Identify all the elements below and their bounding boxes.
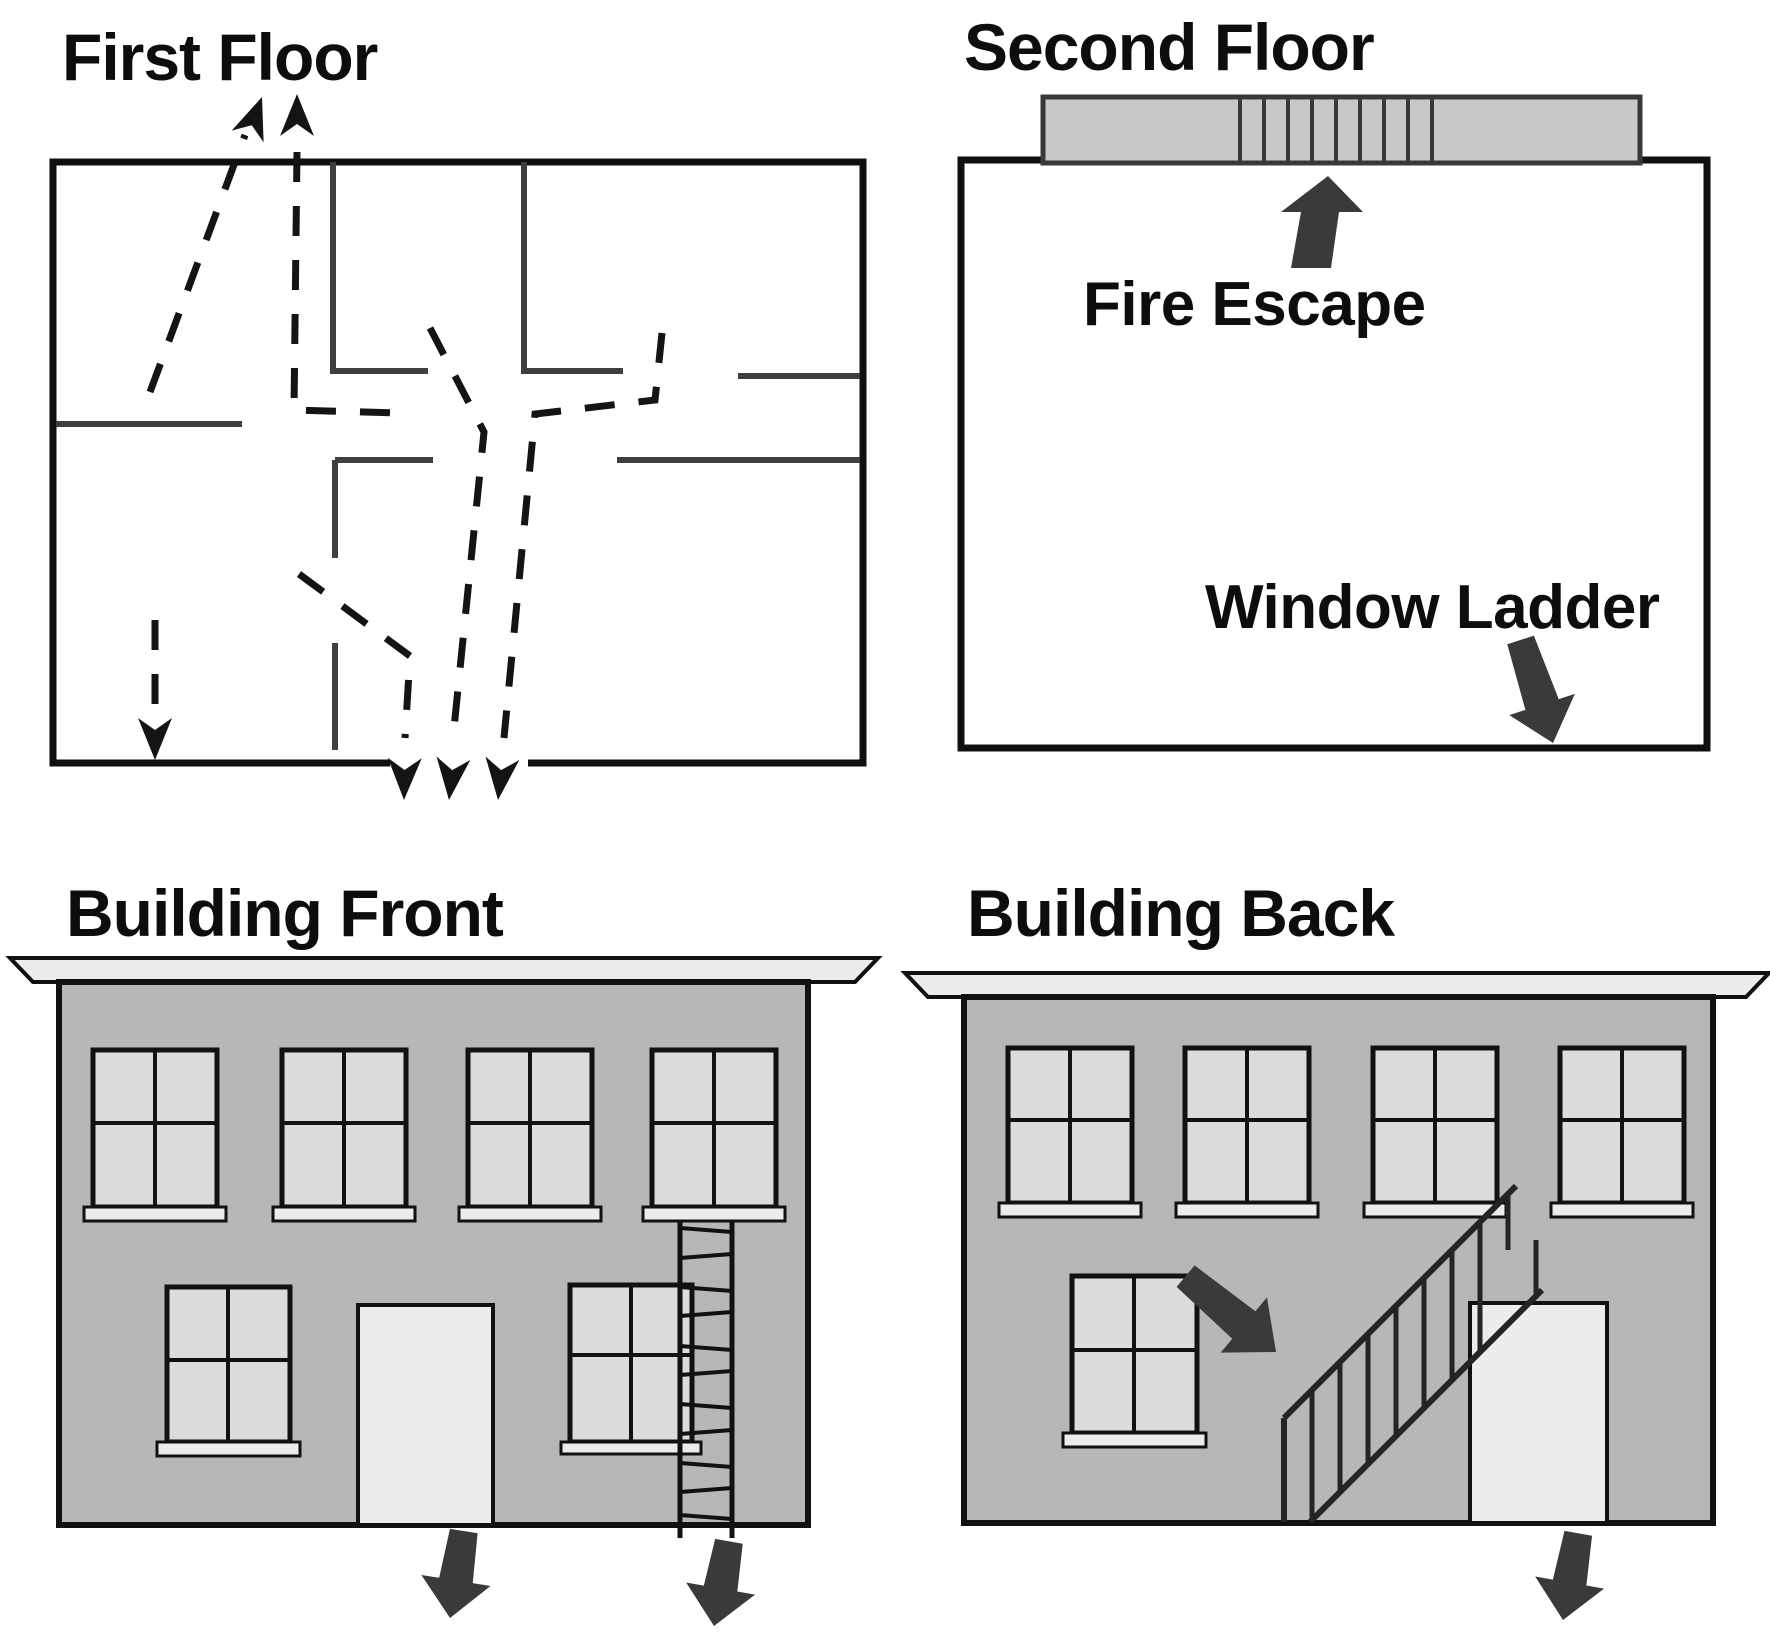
first-floor-title: First Floor — [62, 20, 378, 94]
back-upper-window-4 — [1551, 1048, 1693, 1217]
back-upper-window-2 — [1176, 1048, 1318, 1217]
escape-route-down-left — [138, 620, 172, 760]
front-door-exit-arrow — [415, 1526, 498, 1624]
fire-escape-diagram: First Floor — [0, 0, 1770, 1632]
front-upper-window-1 — [84, 1050, 226, 1221]
front-door — [358, 1305, 493, 1525]
front-upper-window-3 — [459, 1050, 601, 1221]
front-upper-window-4 — [643, 1050, 785, 1221]
back-door-exit-arrow — [1529, 1527, 1613, 1626]
building-front-roof — [10, 958, 878, 982]
first-floor-panel: First Floor — [53, 20, 863, 802]
building-back-title: Building Back — [967, 876, 1395, 950]
building-back-panel: Building Back — [905, 876, 1769, 1626]
fire-escape-platform — [1043, 97, 1640, 163]
building-front-title: Building Front — [66, 876, 504, 950]
building-back-roof — [905, 973, 1769, 997]
building-front-panel: Building Front — [10, 876, 878, 1632]
back-lower-window — [1063, 1276, 1206, 1447]
back-door — [1470, 1303, 1607, 1523]
second-floor-panel: Second Floor Fire Escape Window Ladder — [961, 10, 1707, 753]
back-upper-window-1 — [999, 1048, 1141, 1217]
fire-escape-label: Fire Escape — [1083, 270, 1426, 339]
front-ladder-exit-arrow — [680, 1535, 764, 1632]
escape-route-up-left — [150, 91, 278, 392]
escape-route-right — [481, 333, 662, 802]
escape-route-center — [430, 328, 484, 802]
second-floor-outline — [961, 160, 1707, 748]
front-lower-window-left — [157, 1287, 300, 1456]
window-ladder-label: Window Ladder — [1205, 573, 1660, 642]
back-upper-window-3 — [1364, 1048, 1506, 1217]
second-floor-title: Second Floor — [964, 10, 1374, 84]
front-upper-window-2 — [273, 1050, 415, 1221]
escape-route-up-middle — [280, 94, 398, 413]
